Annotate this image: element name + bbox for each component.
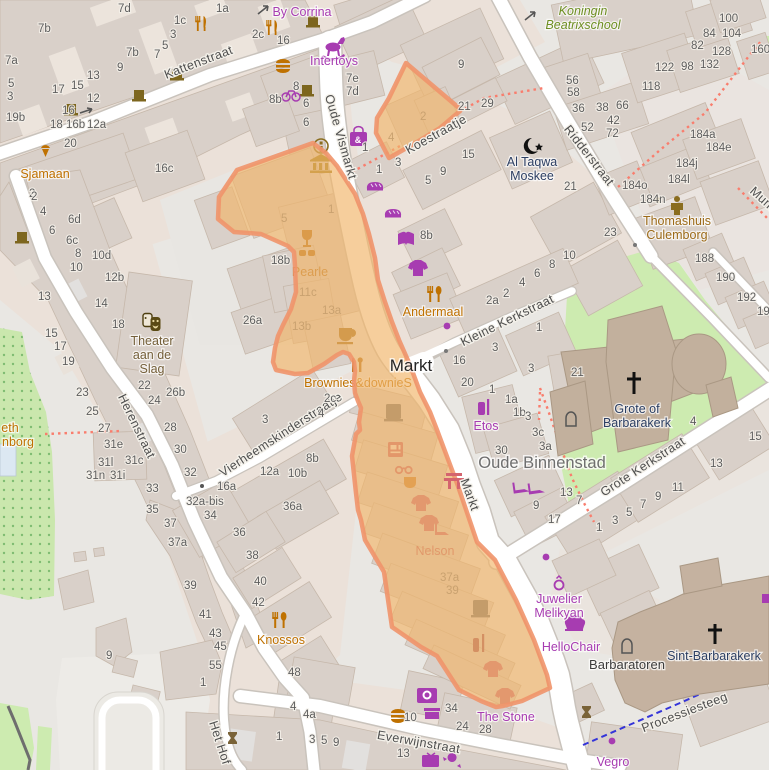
svg-text:17: 17 — [548, 514, 561, 526]
svg-text:nborg: nborg — [2, 435, 34, 449]
svg-text:32a-bis: 32a-bis — [186, 496, 224, 508]
svg-text:The Stone: The Stone — [477, 710, 535, 724]
svg-text:184l: 184l — [668, 174, 690, 186]
svg-text:72: 72 — [606, 128, 619, 140]
svg-text:25: 25 — [86, 406, 99, 418]
svg-text:184j: 184j — [676, 158, 698, 170]
svg-text:30: 30 — [174, 444, 187, 456]
svg-text:Beatrixschool: Beatrixschool — [545, 18, 621, 32]
svg-text:36: 36 — [572, 103, 585, 115]
svg-text:31n: 31n — [86, 470, 105, 482]
svg-text:6: 6 — [534, 268, 540, 280]
svg-text:160: 160 — [751, 44, 769, 56]
svg-text:Knossos: Knossos — [257, 633, 305, 647]
svg-text:36a: 36a — [283, 501, 303, 513]
svg-text:1: 1 — [200, 677, 206, 689]
svg-text:22: 22 — [138, 380, 151, 392]
svg-text:43: 43 — [209, 628, 222, 640]
svg-text:7b: 7b — [126, 47, 139, 59]
svg-text:1: 1 — [276, 731, 282, 743]
svg-text:9: 9 — [333, 737, 339, 749]
svg-text:Al Taqwa: Al Taqwa — [507, 155, 558, 169]
svg-text:41: 41 — [199, 609, 212, 621]
svg-text:9: 9 — [440, 166, 446, 178]
svg-text:19: 19 — [757, 306, 769, 318]
svg-text:66: 66 — [616, 100, 629, 112]
svg-text:Theater: Theater — [130, 334, 173, 348]
svg-text:1c: 1c — [174, 15, 186, 27]
svg-text:17: 17 — [54, 341, 67, 353]
svg-text:1: 1 — [596, 522, 602, 534]
svg-text:10: 10 — [70, 262, 83, 274]
svg-text:42: 42 — [607, 115, 620, 127]
svg-text:Barbaratoren: Barbaratoren — [589, 657, 665, 672]
svg-text:9: 9 — [458, 59, 464, 71]
svg-text:16c: 16c — [155, 163, 174, 175]
svg-text:By Corrina: By Corrina — [272, 5, 331, 19]
svg-text:31l: 31l — [98, 457, 113, 469]
svg-text:7e: 7e — [346, 73, 359, 85]
svg-text:28: 28 — [479, 724, 492, 736]
svg-text:Markt: Markt — [390, 356, 433, 375]
svg-text:16: 16 — [453, 355, 466, 367]
svg-text:36: 36 — [233, 527, 246, 539]
svg-text:4: 4 — [40, 206, 47, 218]
svg-text:6: 6 — [303, 98, 309, 110]
svg-text:31e: 31e — [104, 439, 123, 451]
svg-text:23: 23 — [604, 227, 617, 239]
svg-text:Vegro: Vegro — [597, 755, 630, 769]
svg-text:184a: 184a — [690, 129, 716, 141]
svg-text:9: 9 — [655, 491, 661, 503]
svg-text:32: 32 — [184, 467, 197, 479]
svg-text:3: 3 — [612, 515, 618, 527]
svg-text:16: 16 — [277, 35, 290, 47]
svg-text:1: 1 — [536, 322, 542, 334]
svg-text:3: 3 — [492, 342, 498, 354]
svg-text:aan de: aan de — [133, 348, 171, 362]
svg-text:1a: 1a — [505, 394, 518, 406]
svg-text:8: 8 — [75, 248, 81, 260]
svg-text:&: & — [355, 135, 362, 145]
svg-text:3: 3 — [395, 157, 401, 169]
svg-text:42: 42 — [252, 597, 265, 609]
svg-text:100: 100 — [719, 13, 738, 25]
svg-text:104: 104 — [722, 28, 742, 40]
svg-text:HelloChair: HelloChair — [542, 640, 600, 654]
svg-text:Intertoys: Intertoys — [310, 54, 358, 68]
svg-text:55: 55 — [209, 660, 222, 672]
svg-text:Grote of: Grote of — [614, 402, 660, 416]
svg-text:Thomashuis: Thomashuis — [643, 214, 711, 228]
svg-text:5: 5 — [162, 40, 168, 52]
svg-text:82: 82 — [691, 40, 704, 52]
svg-text:Etos: Etos — [473, 419, 498, 433]
svg-text:15: 15 — [71, 80, 84, 92]
svg-text:17: 17 — [52, 84, 65, 96]
svg-text:40: 40 — [254, 576, 267, 588]
svg-text:2c: 2c — [324, 393, 336, 405]
svg-text:13: 13 — [710, 458, 723, 470]
svg-text:8: 8 — [293, 81, 299, 93]
svg-text:23: 23 — [76, 387, 89, 399]
svg-text:21: 21 — [571, 367, 584, 379]
svg-text:35: 35 — [146, 504, 159, 516]
svg-text:56: 56 — [566, 75, 579, 87]
svg-text:12a: 12a — [87, 119, 107, 131]
svg-text:122: 122 — [655, 62, 674, 74]
svg-text:24: 24 — [456, 721, 469, 733]
svg-text:18: 18 — [50, 119, 63, 131]
svg-text:eth: eth — [1, 421, 18, 435]
svg-text:5: 5 — [626, 507, 632, 519]
svg-text:16: 16 — [62, 105, 75, 117]
svg-text:98: 98 — [681, 61, 694, 73]
svg-text:3c: 3c — [532, 427, 544, 439]
svg-text:8: 8 — [549, 259, 555, 271]
svg-text:Culemborg: Culemborg — [646, 228, 707, 242]
svg-text:7: 7 — [154, 49, 160, 61]
svg-text:1: 1 — [362, 142, 368, 154]
svg-text:19: 19 — [62, 356, 75, 368]
svg-text:188: 188 — [695, 253, 714, 265]
svg-text:13: 13 — [560, 487, 573, 499]
svg-text:6d: 6d — [68, 214, 81, 226]
svg-text:8b: 8b — [306, 453, 319, 465]
svg-text:Sint-Barbarakerk: Sint-Barbarakerk — [667, 649, 762, 663]
svg-text:12b: 12b — [105, 272, 124, 284]
svg-text:Koningin: Koningin — [559, 4, 608, 18]
svg-text:1b: 1b — [513, 407, 526, 419]
svg-text:11: 11 — [672, 482, 684, 494]
svg-text:58: 58 — [567, 87, 580, 99]
svg-text:34: 34 — [445, 703, 458, 715]
svg-text:38: 38 — [246, 550, 259, 562]
svg-text:Moskee: Moskee — [510, 169, 554, 183]
svg-text:21: 21 — [564, 181, 577, 193]
svg-text:2: 2 — [503, 288, 509, 300]
svg-text:20: 20 — [461, 377, 474, 389]
svg-text:13: 13 — [397, 748, 410, 760]
svg-text:10b: 10b — [288, 468, 307, 480]
svg-text:16a: 16a — [217, 481, 237, 493]
svg-text:4: 4 — [318, 408, 325, 420]
svg-text:15: 15 — [749, 431, 762, 443]
svg-text:7: 7 — [640, 499, 646, 511]
svg-text:Andermaal: Andermaal — [403, 305, 463, 319]
svg-text:48: 48 — [288, 667, 301, 679]
svg-text:27: 27 — [98, 423, 111, 435]
svg-text:84: 84 — [703, 28, 716, 40]
svg-text:1: 1 — [489, 384, 495, 396]
svg-text:18: 18 — [112, 319, 125, 331]
svg-text:7: 7 — [576, 495, 582, 507]
svg-text:Juwelier: Juwelier — [536, 592, 582, 606]
svg-text:5: 5 — [321, 735, 327, 747]
svg-text:7d: 7d — [346, 86, 359, 98]
svg-text:8b: 8b — [420, 230, 433, 242]
svg-text:Sjamaan: Sjamaan — [20, 167, 69, 181]
svg-text:37: 37 — [164, 518, 177, 530]
svg-text:52: 52 — [581, 122, 594, 134]
svg-text:132: 132 — [700, 59, 719, 71]
svg-text:3: 3 — [309, 734, 315, 746]
svg-text:2a: 2a — [486, 295, 499, 307]
svg-text:33: 33 — [146, 483, 159, 495]
svg-text:184n: 184n — [640, 194, 666, 206]
svg-text:37a: 37a — [168, 537, 188, 549]
svg-text:16b: 16b — [66, 119, 85, 131]
svg-text:14: 14 — [95, 298, 108, 310]
svg-text:20: 20 — [64, 138, 77, 150]
svg-text:19b: 19b — [6, 112, 25, 124]
svg-text:7b: 7b — [38, 23, 51, 35]
svg-text:Slag: Slag — [139, 362, 164, 376]
svg-text:28: 28 — [164, 422, 177, 434]
svg-text:39: 39 — [184, 580, 197, 592]
svg-text:184o: 184o — [622, 180, 648, 192]
svg-text:128: 128 — [712, 46, 731, 58]
svg-text:3: 3 — [528, 363, 534, 375]
svg-text:6: 6 — [49, 225, 55, 237]
svg-text:9: 9 — [106, 650, 112, 662]
svg-text:34: 34 — [204, 510, 217, 522]
svg-text:1: 1 — [376, 164, 382, 176]
svg-text:4: 4 — [290, 701, 297, 713]
svg-text:7a: 7a — [5, 55, 18, 67]
svg-text:118: 118 — [642, 81, 660, 93]
svg-text:3: 3 — [170, 29, 176, 41]
svg-text:3: 3 — [262, 414, 268, 426]
svg-text:8b: 8b — [269, 94, 282, 106]
svg-text:4: 4 — [690, 416, 697, 428]
svg-text:192: 192 — [737, 292, 756, 304]
svg-text:3a: 3a — [539, 441, 552, 453]
svg-text:29: 29 — [481, 98, 494, 110]
svg-text:5: 5 — [425, 175, 431, 187]
svg-text:9: 9 — [533, 500, 539, 512]
svg-text:30: 30 — [495, 445, 508, 457]
svg-text:3: 3 — [525, 411, 531, 423]
svg-text:6c: 6c — [66, 235, 78, 247]
svg-text:5: 5 — [8, 78, 14, 90]
svg-text:18b: 18b — [271, 255, 290, 267]
svg-text:1a: 1a — [216, 3, 229, 15]
svg-text:10d: 10d — [92, 250, 111, 262]
svg-text:31i: 31i — [110, 470, 125, 482]
svg-text:21: 21 — [458, 101, 471, 113]
svg-text:4: 4 — [519, 277, 526, 289]
svg-text:13: 13 — [87, 70, 100, 82]
svg-text:Barbarakerk: Barbarakerk — [603, 416, 672, 430]
svg-text:10: 10 — [563, 250, 576, 262]
svg-text:12: 12 — [87, 93, 100, 105]
svg-text:31c: 31c — [125, 455, 144, 467]
svg-text:24: 24 — [148, 395, 161, 407]
svg-text:12a: 12a — [260, 466, 280, 478]
svg-text:45: 45 — [214, 641, 227, 653]
svg-text:190: 190 — [716, 272, 735, 284]
svg-text:7d: 7d — [118, 3, 131, 15]
svg-text:3: 3 — [7, 91, 13, 103]
svg-text:15: 15 — [462, 149, 475, 161]
svg-text:15: 15 — [45, 328, 58, 340]
svg-text:2c: 2c — [252, 29, 264, 41]
svg-text:184e: 184e — [706, 142, 732, 154]
svg-text:4a: 4a — [303, 709, 316, 721]
svg-text:Melikyan: Melikyan — [534, 606, 583, 620]
svg-text:26a: 26a — [243, 315, 263, 327]
svg-text:13: 13 — [38, 291, 51, 303]
svg-text:6: 6 — [303, 117, 309, 129]
svg-text:10: 10 — [404, 712, 417, 724]
svg-text:38: 38 — [596, 102, 609, 114]
svg-text:2: 2 — [31, 191, 37, 203]
svg-text:9: 9 — [117, 62, 123, 74]
svg-text:26b: 26b — [166, 387, 185, 399]
